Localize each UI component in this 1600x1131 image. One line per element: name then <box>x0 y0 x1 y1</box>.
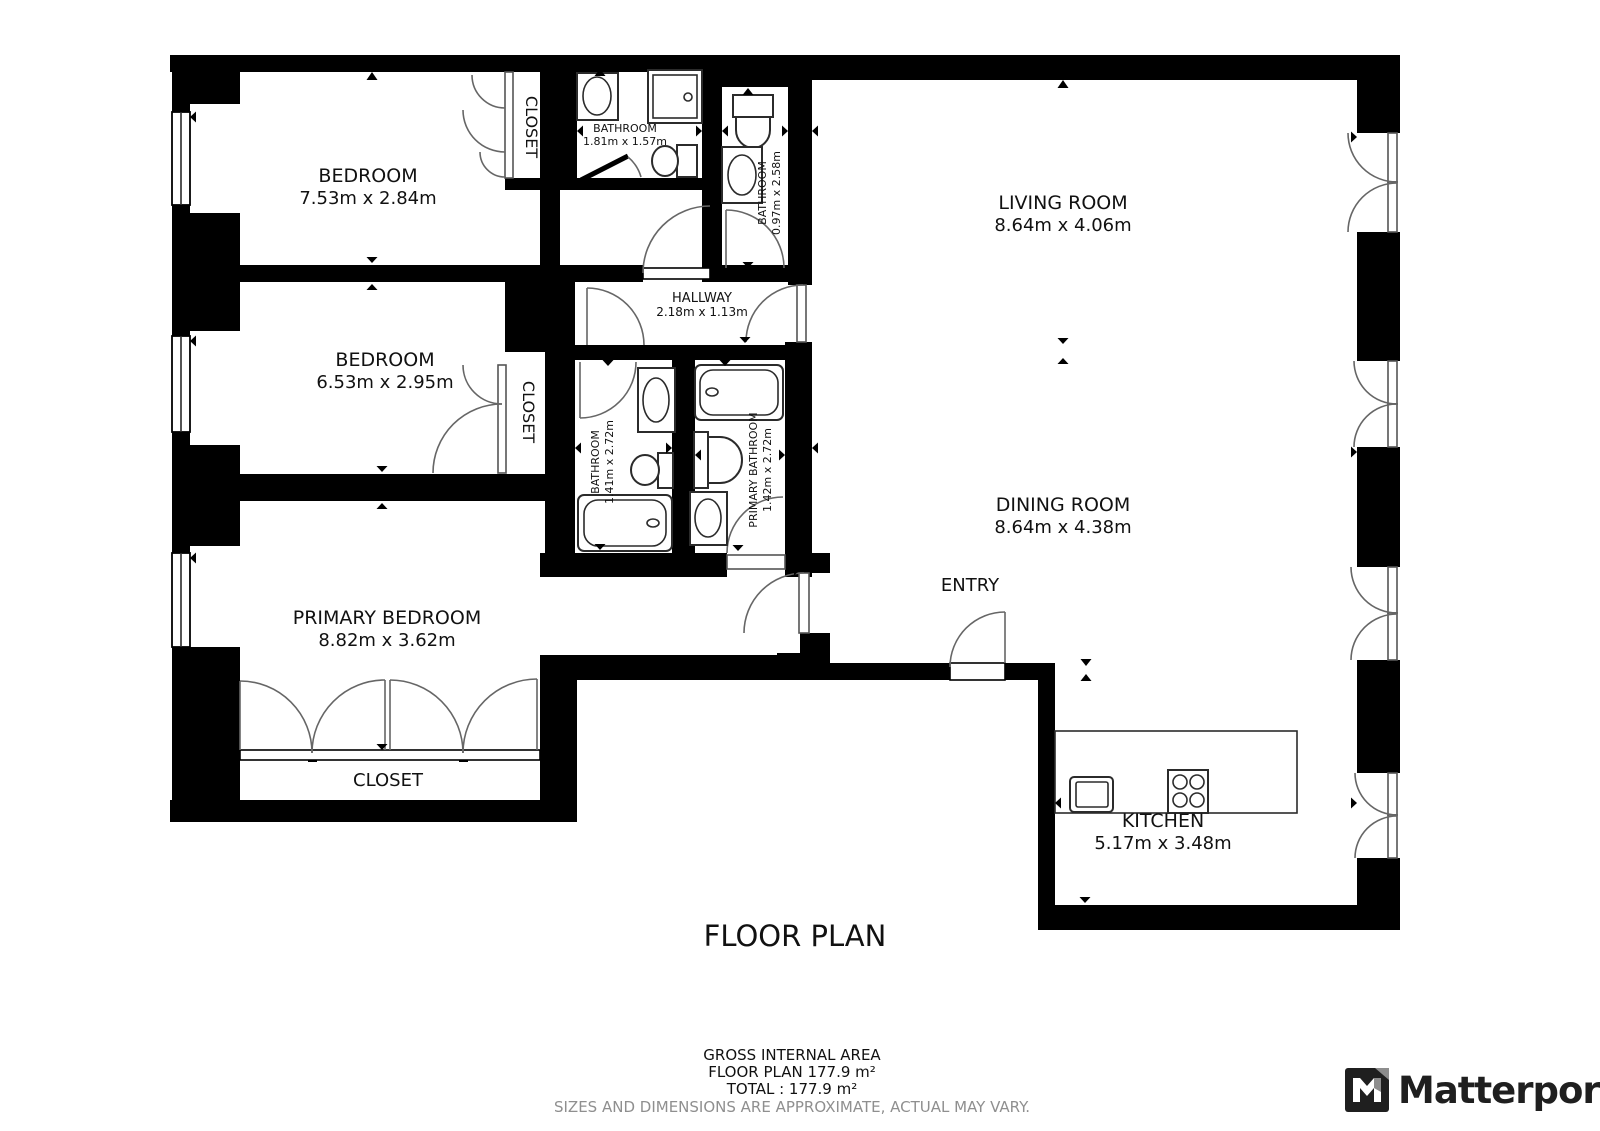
page-title: FLOOR PLAN <box>704 919 887 953</box>
bathroom-top-label: BATHROOM <box>593 122 657 135</box>
kitchen-sink-icon <box>1070 777 1113 812</box>
bathroom-mid-dims: 1.41m x 2.72m <box>603 420 616 504</box>
door-icon <box>580 362 636 418</box>
annotations: FLOOR PLAN GROSS INTERNAL AREA FLOOR PLA… <box>554 919 1030 1116</box>
gross-internal-area: GROSS INTERNAL AREA <box>703 1046 881 1064</box>
french-door-icon <box>1351 567 1397 660</box>
total-area: TOTAL : 177.9 m² <box>726 1080 858 1098</box>
closet-top-label: CLOSET <box>522 96 541 158</box>
kitchen-label: KITCHEN <box>1122 810 1204 832</box>
entry-label: ENTRY <box>941 575 1000 596</box>
floor-plan-canvas: BEDROOM 7.53m x 2.84m BEDROOM 6.53m x 2.… <box>0 0 1600 1131</box>
floor-plan-area: FLOOR PLAN 177.9 m² <box>708 1063 876 1081</box>
closet-mid-label: CLOSET <box>519 381 538 443</box>
closet-door-icon <box>240 679 540 760</box>
living-room-label: LIVING ROOM <box>998 192 1127 214</box>
door-icon <box>744 573 809 633</box>
window-icon <box>172 112 190 205</box>
disclaimer: SIZES AND DIMENSIONS ARE APPROXIMATE, AC… <box>554 1098 1030 1116</box>
toilet-icon <box>733 95 773 148</box>
sink-icon <box>638 368 675 432</box>
primary-bathroom-label: PRIMARY BATHROOM <box>747 412 760 527</box>
bathtub-icon <box>695 365 783 420</box>
primary-bedroom-dims: 8.82m x 3.62m <box>318 630 455 651</box>
window-icon <box>172 553 190 647</box>
bathroom-top-dims: 1.81m x 1.57m <box>583 135 667 148</box>
matterport-logo-icon <box>1345 1068 1389 1112</box>
door-icon <box>581 156 641 180</box>
door-icon <box>587 288 644 345</box>
toilet-icon <box>631 453 673 488</box>
window-icon <box>172 336 190 432</box>
bedroom1-label: BEDROOM <box>318 165 417 187</box>
bathroom-right-dims: 0.97m x 2.58m <box>770 151 783 235</box>
dining-room-label: DINING ROOM <box>996 494 1131 516</box>
stove-icon <box>1168 770 1208 813</box>
hallway-label: HALLWAY <box>672 291 732 306</box>
bathroom-mid-label: BATHROOM <box>589 430 602 494</box>
french-door-icon <box>1354 361 1397 447</box>
primary-bathroom-dims: 1.42m x 2.72m <box>761 428 774 512</box>
living-room-dims: 8.64m x 4.06m <box>994 215 1131 236</box>
closet-door-icon <box>463 72 513 178</box>
bedroom2-label: BEDROOM <box>335 349 434 371</box>
door-icon <box>643 206 710 279</box>
dining-room-dims: 8.64m x 4.38m <box>994 517 1131 538</box>
bedroom2-dims: 6.53m x 2.95m <box>316 372 453 393</box>
sink-icon <box>690 492 727 545</box>
closet-primary-label: CLOSET <box>353 770 424 791</box>
primary-bedroom-label: PRIMARY BEDROOM <box>293 607 481 629</box>
bedroom1-dims: 7.53m x 2.84m <box>299 188 436 209</box>
sink-icon <box>577 73 618 120</box>
french-door-icon <box>1355 773 1397 858</box>
windows <box>172 112 190 647</box>
shower-icon <box>648 70 702 123</box>
french-door-icon <box>1348 133 1397 232</box>
matterport-logo: Matterport <box>1345 1068 1600 1112</box>
kitchen-dims: 5.17m x 3.48m <box>1094 833 1231 854</box>
bathroom-right-label: BATHROOM <box>756 161 769 225</box>
entry-door-icon <box>950 612 1005 680</box>
hallway-dims: 2.18m x 1.13m <box>656 305 748 319</box>
toilet-icon <box>652 145 697 177</box>
matterport-logo-text: Matterport <box>1398 1069 1600 1112</box>
bathtub-icon <box>578 495 672 551</box>
toilet-icon <box>694 432 742 488</box>
floor-plan-page: BEDROOM 7.53m x 2.84m BEDROOM 6.53m x 2.… <box>0 0 1600 1131</box>
door-icon <box>746 285 806 342</box>
